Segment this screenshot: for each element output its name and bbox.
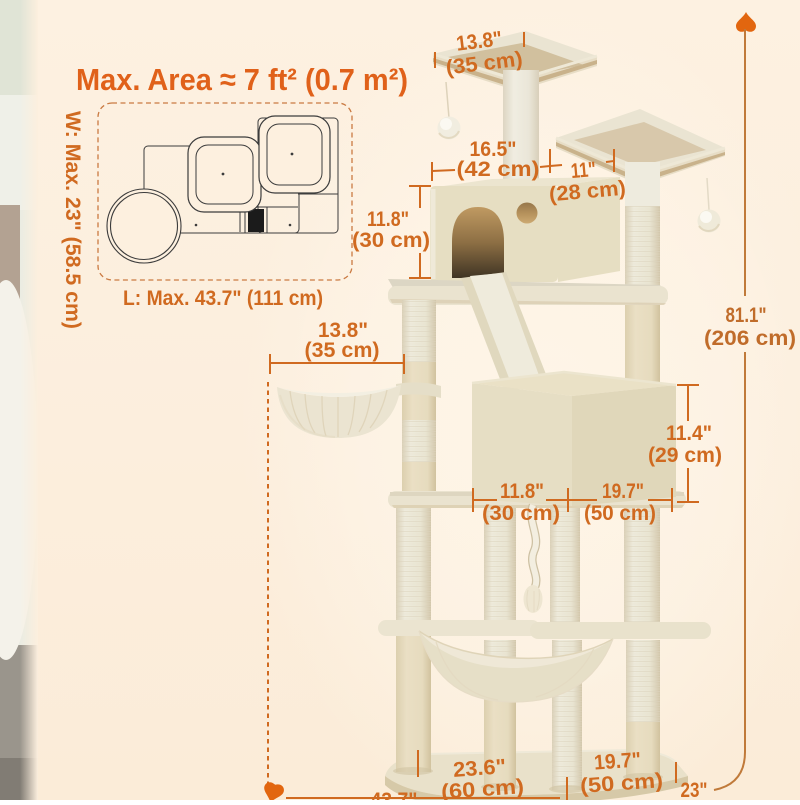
svg-text:(206 cm): (206 cm) [704, 327, 796, 350]
svg-text:L: Max. 43.7" (111 cm): L: Max. 43.7" (111 cm) [123, 287, 323, 310]
svg-text:23": 23" [681, 779, 708, 800]
svg-text:11.4": 11.4" [666, 422, 712, 445]
svg-text:(30 cm): (30 cm) [482, 502, 560, 525]
svg-text:(30 cm): (30 cm) [352, 229, 430, 252]
svg-text:(50 cm): (50 cm) [584, 502, 656, 525]
svg-text:11.8": 11.8" [500, 480, 544, 503]
svg-text:81.1": 81.1" [726, 304, 767, 327]
svg-text:(35 cm): (35 cm) [305, 339, 380, 362]
svg-text:19.7": 19.7" [602, 480, 644, 503]
svg-text:W: Max. 23" (58.5 cm): W: Max. 23" (58.5 cm) [61, 111, 84, 329]
svg-text:(29 cm): (29 cm) [648, 444, 722, 467]
svg-text:11.8": 11.8" [367, 208, 409, 231]
svg-text:(42 cm): (42 cm) [457, 158, 540, 181]
svg-text:Max. Area ≈ 7 ft² (0.7 m²): Max. Area ≈ 7 ft² (0.7 m²) [76, 62, 408, 97]
